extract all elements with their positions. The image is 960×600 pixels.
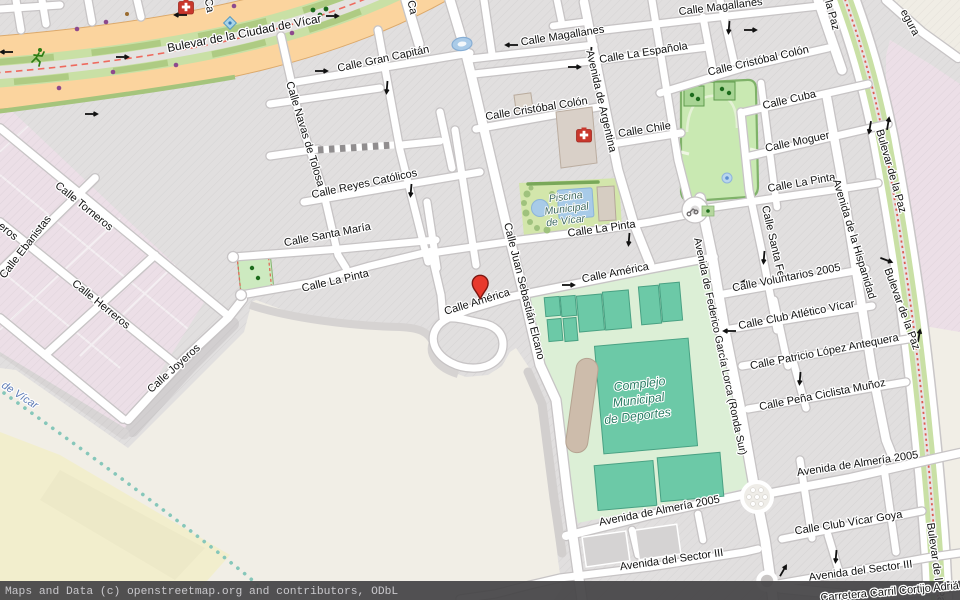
svg-text:Maps and Data (c) openstreetma: Maps and Data (c) openstreetmap.org and … (5, 586, 398, 598)
